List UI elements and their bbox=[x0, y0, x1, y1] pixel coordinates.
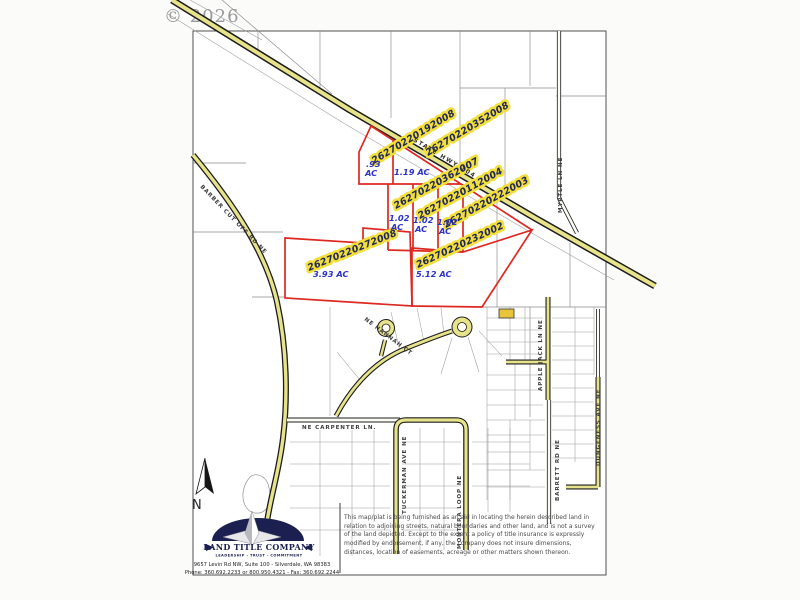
logo-tagline: LEADERSHIP - TRUST - COMMITMENT bbox=[216, 554, 303, 558]
company-phone: Phone: 360.692.2233 or 800.950.4321 - Fa… bbox=[185, 570, 340, 576]
acreage-label: AC bbox=[390, 222, 404, 232]
acreage-label: AC bbox=[364, 168, 378, 178]
street-label-barrett: BARRETT RD NE bbox=[555, 439, 561, 501]
acreage-label: 1.19 AC bbox=[394, 167, 431, 177]
street-label-applejack: APPLE JACK LN NE bbox=[538, 319, 544, 391]
street-label-tuckerman: TUCKERMAN AVE NE bbox=[402, 436, 408, 514]
acreage-label: AC bbox=[438, 226, 452, 236]
logo-company-name: LAND TITLE COMPANY bbox=[203, 542, 314, 552]
acreage-label: 3.93 AC bbox=[313, 269, 350, 279]
plat-map: © 2026 bbox=[0, 0, 800, 600]
street-label-dungeness: DUNGENESS AVE NE bbox=[596, 389, 602, 467]
street-label-carpenter: NE CARPENTER LN. bbox=[302, 425, 376, 431]
acreage-label: 5.12 AC bbox=[416, 269, 453, 279]
highlighted-feature-box bbox=[499, 309, 514, 318]
disclaimer-text: This map/plat is being furnished as an a… bbox=[344, 514, 596, 557]
north-label: N bbox=[192, 498, 202, 513]
street-label-myrtle: MYRTLE LN NE bbox=[558, 157, 564, 213]
company-address: 9657 Levin Rd NW, Suite 100 - Silverdale… bbox=[194, 562, 331, 568]
map-sheet bbox=[193, 31, 606, 575]
acreage-label: AC bbox=[414, 224, 428, 234]
